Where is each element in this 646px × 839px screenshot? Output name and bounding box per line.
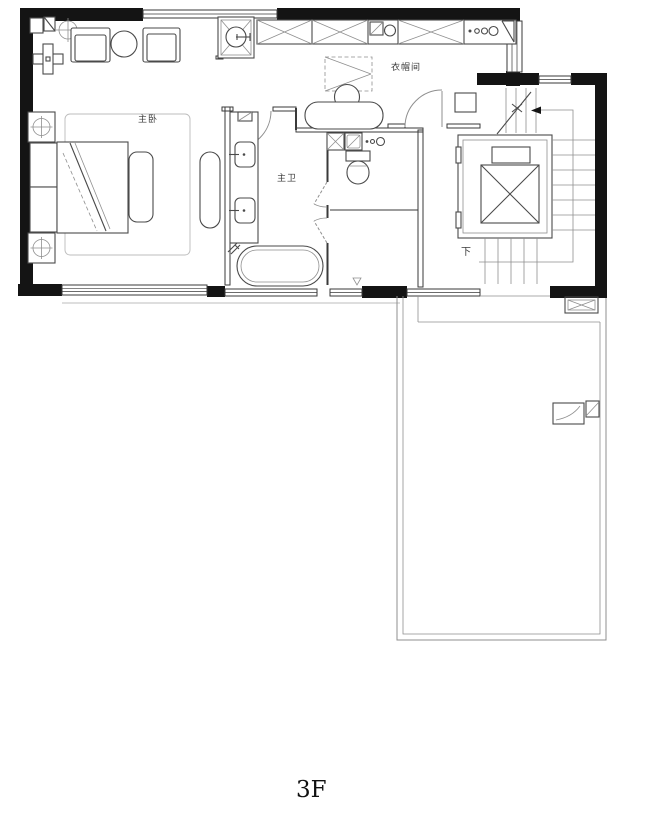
wall-bedroom-bath (225, 107, 230, 285)
window-bottom-bath-left (225, 289, 317, 296)
door-wc-bifold-upper (314, 182, 327, 207)
nightstand-top (28, 112, 55, 142)
stair-core (456, 88, 595, 284)
floor-plan-drawing (0, 0, 646, 839)
wall-wc-right (418, 130, 423, 287)
toilet (346, 151, 370, 184)
elevator-cab (481, 165, 539, 223)
floor-plan-canvas: 主卧 主卫 衣帽间 下 3F (0, 0, 646, 839)
terrace-inner-edge (403, 296, 600, 634)
counter-accessory-icons (366, 138, 385, 146)
foot-bench (129, 152, 153, 222)
terrace (397, 296, 606, 640)
window-bottom-bath-right (330, 289, 362, 296)
window-top-bedroom (143, 10, 277, 18)
bathtub (228, 243, 323, 286)
floor-level-label: 3F (296, 779, 327, 802)
wardrobe-row (257, 20, 516, 44)
staircase (479, 88, 595, 284)
window-bottom-bedroom (62, 285, 207, 295)
room-label-cloakroom: 衣帽间 (391, 64, 421, 73)
terrace-outer-edge (397, 296, 606, 640)
room-label-master-bathroom: 主卫 (277, 175, 297, 184)
armchair-left (71, 28, 110, 62)
window-stair-top (539, 76, 571, 83)
wall-closet-bath-right (273, 107, 296, 111)
hall-side-table (455, 93, 476, 112)
nightstand-bottom (28, 233, 55, 263)
ac-unit (553, 401, 599, 424)
bed (30, 142, 128, 233)
door-closet-to-hall (405, 90, 442, 127)
ottoman-island (305, 102, 383, 129)
shower-stall (218, 17, 254, 58)
elevator (456, 135, 552, 238)
washer-box (327, 133, 344, 150)
cross-column-symbol (33, 44, 63, 74)
wc-basin (345, 133, 362, 150)
bedroom-furniture (28, 17, 220, 263)
door-wc-bifold-lower (314, 218, 327, 243)
room-label-master-bedroom: 主卧 (138, 116, 158, 125)
wall-above-elevator (447, 124, 480, 128)
armchair-right (143, 28, 180, 62)
oval-bench (200, 152, 220, 228)
floor-drain-icon (353, 278, 361, 285)
elevator-counterweight (492, 147, 530, 163)
stairs-down-label: 下 (461, 248, 471, 258)
corner-boxes (30, 17, 55, 33)
skylight-window-box (565, 297, 598, 313)
round-side-table (111, 31, 137, 57)
stair-direction-arrow (497, 92, 541, 134)
wall-closet-bath-left (222, 107, 233, 111)
window-bottom-hall (407, 289, 480, 296)
wall-hall-door-stub (388, 124, 405, 128)
